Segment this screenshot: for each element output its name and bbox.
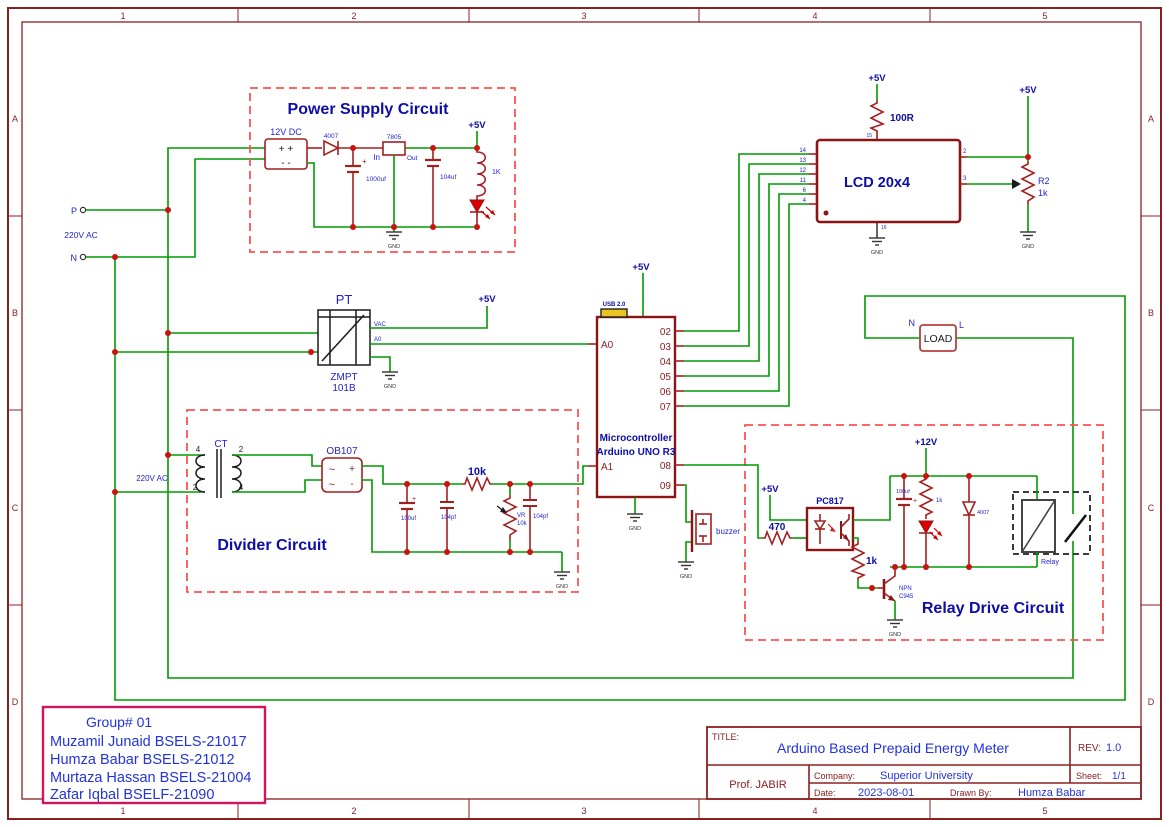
group-title: Group# 01: [86, 714, 152, 730]
cap-plus-sign: +: [362, 157, 367, 166]
schematic-svg: 1 2 3 4 5 1 2 3 4 5 A B C D A B C D P N …: [0, 0, 1169, 827]
pin-09: 09: [660, 481, 672, 492]
pot-r2-value: 1k: [1038, 188, 1048, 198]
ruler-col: 1: [120, 806, 125, 816]
terminal-n: [80, 254, 85, 259]
lcd-pin1-mark: [824, 211, 829, 216]
group-info-box: Group# 01 Muzamil Junaid BSELS-21017 Hum…: [43, 707, 265, 803]
svg-text:GND: GND: [1022, 244, 1034, 250]
pin-07: 07: [660, 402, 672, 413]
sheet-title: Arduino Based Prepaid Energy Meter: [777, 740, 1009, 756]
pt-part-name2: 101B: [332, 383, 356, 394]
cap-plus-sign: +: [412, 496, 416, 503]
ruler-col: 3: [581, 11, 586, 21]
relay-component: Relay: [1013, 476, 1090, 567]
cap-plus-sign: +: [913, 498, 917, 505]
gnd-symbol: GND: [386, 232, 402, 250]
dc-polarity-minus: - -: [281, 158, 290, 169]
ruler-col: 4: [812, 806, 817, 816]
pin-a0: A0: [601, 340, 614, 351]
pin-04: 04: [660, 357, 672, 368]
ruler-row: A: [12, 114, 18, 124]
net-5v-label: +5V: [868, 73, 886, 84]
ruler-row: C: [12, 503, 19, 513]
rev-value: 1.0: [1106, 742, 1121, 754]
svg-text:GND: GND: [680, 574, 692, 580]
date-label: Date:: [814, 788, 836, 798]
dc-polarity-plus: + +: [279, 144, 294, 155]
load-n-label: N: [909, 318, 916, 328]
author: Prof. JABIR: [729, 779, 787, 791]
regulator-in-label: In: [373, 153, 380, 162]
ruler-row: C: [1148, 503, 1155, 513]
usb-connector: [601, 309, 627, 317]
date-value: 2023-08-01: [858, 787, 914, 799]
rev-label: REV:: [1078, 743, 1101, 754]
cap-104pf-divider: 104pf: [440, 484, 456, 552]
gnd-symbol: GND: [627, 514, 643, 532]
gnd-symbol: GND: [554, 572, 570, 590]
net-5v-label: +5V: [468, 120, 486, 131]
company-label: Company:: [814, 771, 855, 781]
ruler-row: B: [1148, 308, 1154, 318]
resistor-10k-label: 10k: [468, 466, 487, 478]
ruler-col: 4: [812, 11, 817, 21]
bridge-ob107: OB107 ~ + ~ -: [322, 446, 362, 492]
pt-pin-a0: A0: [374, 337, 382, 343]
ruler-col: 2: [351, 11, 356, 21]
pin-05: 05: [660, 372, 672, 383]
divider-section: Divider Circuit 220V AC CT 4 2 2 4 OB107…: [136, 410, 588, 592]
diode-4007-flyback: 4007: [963, 476, 989, 567]
net-5v-label: +5V: [632, 262, 650, 273]
divider-boundary: [187, 410, 578, 592]
net-12v-label: +12V: [915, 437, 938, 448]
gnd-symbol: GND: [678, 562, 694, 580]
resistor-470-label: 470: [769, 522, 786, 533]
gnd-symbol: GND: [382, 372, 398, 390]
neutral-label: N: [71, 253, 78, 263]
ct-title: CT: [214, 439, 227, 450]
lcd-pin-3: 3: [963, 176, 967, 182]
lcd-pin-13: 13: [799, 158, 806, 164]
pin-02: 02: [660, 327, 672, 338]
ruler-row: D: [1148, 697, 1155, 707]
ruler-col: 5: [1042, 11, 1047, 21]
pot-vr-label: VR: [517, 513, 526, 519]
ct-pin: 2: [239, 445, 244, 454]
transistor-part: C945: [899, 594, 914, 600]
bridge-minus-sign: -: [350, 479, 353, 490]
diode-4007: 4007: [324, 133, 339, 155]
relay-section: Relay Drive Circuit 470 +5V PC817 1k: [684, 425, 1103, 640]
ruler-row: B: [12, 308, 18, 318]
relay-label: Relay: [1041, 559, 1059, 566]
cap-100uf-divider: + 100uf: [399, 484, 416, 552]
svg-text:GND: GND: [871, 250, 883, 256]
ruler-row: A: [1148, 114, 1154, 124]
group-member: Humza Babar BSELS-21012: [50, 752, 235, 768]
transistor-c945: NPN C945 GND: [878, 567, 914, 638]
cap-1000uf-label: 1000uf: [366, 176, 386, 183]
schematic-sheet: 1 2 3 4 5 1 2 3 4 5 A B C D A B C D P N …: [0, 0, 1169, 827]
transistor-type: NPN: [899, 586, 912, 592]
sheet-border: 1 2 3 4 5 1 2 3 4 5 A B C D A B C D: [8, 8, 1161, 819]
lcd-title: LCD 20x4: [844, 175, 910, 191]
ruler-col: 5: [1042, 806, 1047, 816]
group-member: Zafar Iqbal BSELF-21090: [50, 787, 214, 803]
ct-pin: 4: [196, 445, 201, 454]
pt-part-name: ZMPT: [330, 372, 357, 383]
usb-label: USB 2.0: [603, 302, 626, 308]
resistor-1k-led: 1K: [470, 148, 501, 227]
lcd-pin-4: 4: [803, 198, 807, 204]
net-5v-label: +5V: [1019, 85, 1037, 96]
optocoupler-label: PC817: [816, 496, 844, 506]
pot-r2: +5V R2 1k GND: [1019, 85, 1049, 250]
svg-text:GND: GND: [384, 384, 396, 390]
resistor-1k-base: [852, 541, 864, 580]
relay-title: Relay Drive Circuit: [922, 600, 1065, 617]
buzzer-label: buzzer: [716, 527, 740, 536]
pot-vr-10k: VR 10k: [497, 484, 528, 552]
lcd-pin-6: 6: [803, 188, 807, 194]
pt-transformer: [318, 310, 370, 365]
pin-03: 03: [660, 342, 672, 353]
resistor-100r: [871, 100, 883, 140]
gnd-symbol: GND: [1020, 232, 1036, 250]
pin-a1: A1: [601, 462, 614, 473]
bridge-ac-sign: ~: [329, 479, 335, 491]
net-5v-label: +5V: [478, 294, 496, 305]
net-5v-label: +5V: [761, 484, 779, 495]
group-member: Murtaza Hassan BSELS-21004: [50, 770, 252, 786]
diode-4007-label: 4007: [324, 133, 339, 140]
resistor-10k: [462, 478, 492, 490]
bridge-ac-sign: ~: [329, 464, 335, 476]
dc-source-label: 12V DC: [270, 127, 302, 137]
svg-text:GND: GND: [388, 244, 400, 250]
bridge-label: OB107: [326, 446, 358, 457]
ct-voltage-label: 220V AC: [136, 474, 168, 483]
arduino-section: +5V USB 2.0 Microcontroller Arduino UNO …: [588, 154, 809, 580]
ct-pin: 2: [193, 483, 198, 492]
gnd-symbol: GND: [869, 238, 885, 256]
lcd-pin-14: 14: [799, 148, 806, 154]
cap-100uf-label: 100uf: [896, 489, 910, 495]
drawn-by-label: Drawn By:: [950, 788, 992, 798]
bridge-plus-sign: +: [349, 464, 355, 475]
pin-06: 06: [660, 387, 672, 398]
regulator-out-label: Out: [407, 155, 418, 162]
lcd-pin-top: 15: [866, 133, 872, 139]
optocoupler-pc817: PC817: [807, 496, 853, 550]
ct-transformer: CT 4 2 2 4: [193, 439, 244, 498]
ruler-row: D: [12, 697, 19, 707]
phase-label: P: [71, 206, 77, 216]
regulator-label: 7805: [387, 134, 402, 141]
pt-title: PT: [336, 292, 353, 307]
cap-104uf: 104uf: [425, 148, 456, 227]
lcd-pin-12: 12: [799, 168, 806, 174]
resistor-1k-base-label: 1k: [866, 556, 878, 567]
cap-100uf-relay: 100uf +: [896, 476, 917, 567]
arduino-label-2: Arduino UNO R3: [597, 447, 676, 458]
title-label: TITLE:: [712, 732, 739, 742]
cap-104uf-label: 104uf: [440, 174, 456, 181]
sheet-label: Sheet:: [1076, 771, 1102, 781]
pt-pin-vac: VAC: [374, 322, 387, 328]
lcd-left-pins: 14 13 12 11 6 4: [799, 148, 817, 204]
mains-wiring: P N 220V AC: [64, 148, 1125, 700]
resistor-470: [762, 532, 792, 544]
cap-100uf-label: 100uf: [401, 516, 416, 522]
lcd-bus-wires: [684, 154, 809, 406]
pot-vr-value: 10k: [517, 521, 528, 527]
lcd-pin-2: 2: [963, 149, 967, 155]
lcd-pin-11: 11: [800, 178, 807, 184]
load-block: LOAD N L: [909, 318, 965, 351]
svg-text:GND: GND: [629, 526, 641, 532]
company-value: Superior University: [880, 770, 973, 782]
mains-voltage-label: 220V AC: [64, 230, 98, 240]
resistor-1k-led-label: 1k: [936, 498, 943, 504]
load-l-label: L: [959, 320, 964, 330]
title-block: TITLE: Arduino Based Prepaid Energy Mete…: [707, 727, 1141, 799]
terminal-p: [80, 207, 85, 212]
led-12v: 1k: [919, 476, 943, 567]
pot-wiper-arrow: [1012, 179, 1021, 189]
pot-wiper-arrow: [500, 507, 507, 513]
relay-switch-blade: [1065, 515, 1086, 542]
pot-r2-label: R2: [1038, 176, 1050, 186]
ruler-col: 2: [351, 806, 356, 816]
divider-title: Divider Circuit: [217, 537, 327, 554]
power-supply-title: Power Supply Circuit: [288, 101, 450, 118]
ruler-col: 1: [120, 11, 125, 21]
buzzer: buzzer GND: [678, 485, 740, 580]
drawn-by-value: Humza Babar: [1018, 787, 1086, 799]
cap-104pf-label: 104pf: [441, 515, 456, 521]
ruler-col: 3: [581, 806, 586, 816]
svg-text:GND: GND: [556, 584, 568, 590]
led-indicator: [470, 200, 484, 212]
dc-source-block: 12V DC + + - -: [265, 127, 307, 169]
cap-104pf-label: 104pf: [533, 514, 548, 520]
svg-text:GND: GND: [889, 632, 901, 638]
ct-pin: 4: [239, 483, 244, 492]
lcd-section: +5V 100R 15 LCD 20x4 14 13 12 11 6 4 16 …: [799, 73, 1049, 256]
resistor-100r-label: 100R: [890, 113, 915, 124]
arduino-label-1: Microcontroller: [600, 433, 673, 444]
sheet-value: 1/1: [1112, 771, 1126, 782]
lcd-pin-bot: 16: [881, 225, 887, 231]
diode-4007-label: 4007: [977, 510, 989, 516]
cap-104pf2-divider: 104pf: [523, 484, 548, 552]
pt-section: PT ZMPT 101B VAC A0 +5V GND: [318, 292, 588, 394]
group-member: Muzamil Junaid BSELS-21017: [50, 734, 247, 750]
resistor-1k-label: 1K: [492, 169, 501, 176]
pin-08: 08: [660, 461, 672, 472]
load-label: LOAD: [924, 333, 953, 345]
